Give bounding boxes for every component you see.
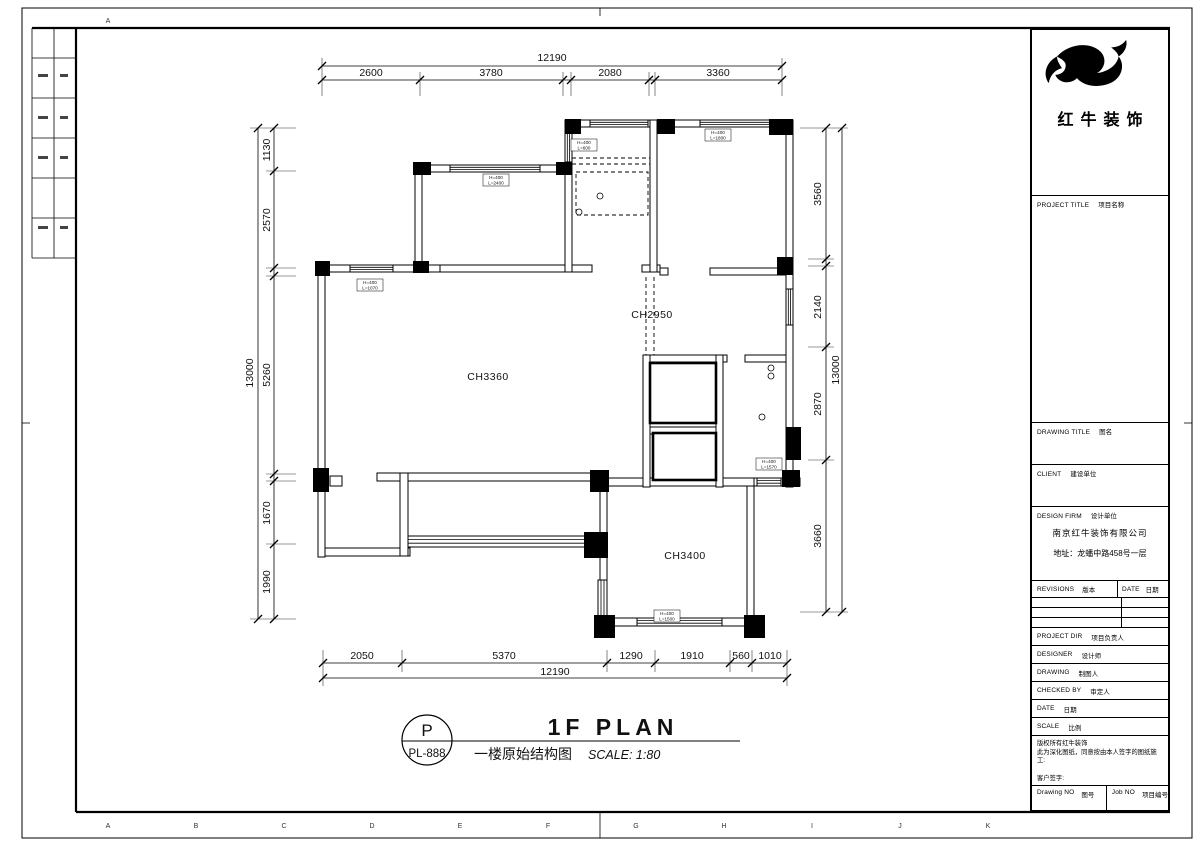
project-title-cell: PROJECT TITLE项目名称 (1032, 195, 1168, 422)
dim-value: 560 (732, 650, 750, 662)
row-label-en: DESIGNER (1037, 651, 1073, 658)
number-cells: Drawing NO图号 Job NO项目编号 (1032, 785, 1168, 810)
dim-value: 1130 (261, 139, 273, 162)
project-dir-row: PROJECT DIR项目负责人 (1032, 627, 1168, 645)
row-label-en: DRAWING (1037, 669, 1070, 676)
designer-row: DESIGNER设计师 (1032, 645, 1168, 663)
grid-letter: B (194, 823, 199, 830)
row-label-en: SCALE (1037, 723, 1059, 730)
window-tag-line: L=1800 (710, 136, 726, 141)
dim-value: 13000 (244, 358, 256, 387)
dim-value: 12190 (537, 52, 566, 64)
company-name: 南京红牛装饰有限公司 (1037, 527, 1163, 539)
window-tag: H=400L=1500 (654, 610, 680, 622)
window-tag-line: H=400 (711, 130, 725, 135)
plan-canvas: A A B C D E F G H I J K (0, 0, 1200, 844)
design-firm-cell: DESIGN FIRM设计单位 南京红牛装饰有限公司 地址：龙蟠中路458号一层 (1032, 506, 1168, 580)
grid-letter: F (546, 823, 550, 830)
copyright-line: 版权所有红牛装饰 (1037, 740, 1163, 749)
copyright-cell: 版权所有红牛装饰 此为深化图纸，同意按由本人签字的图纸施工: 客户签字: (1032, 735, 1168, 785)
window-tag-line: L=1500 (659, 617, 675, 622)
room-label-living: CH3360 (467, 371, 509, 383)
shaft-lower (653, 433, 716, 480)
window (590, 120, 648, 127)
grid-letters-bottom: A B C D E F G H I J K (106, 823, 991, 830)
project-title-label-en: PROJECT TITLE (1037, 202, 1089, 209)
dim-value: 2140 (812, 295, 824, 319)
row-label-cn: 审定人 (1090, 686, 1110, 696)
client-label-cn: 建设单位 (1070, 468, 1096, 478)
window (350, 265, 393, 272)
window (700, 120, 770, 127)
window-tag: H=400L=1070 (357, 279, 383, 291)
drawing-title-label-en: DRAWING TITLE (1037, 429, 1090, 436)
dim-value: 2080 (598, 67, 622, 79)
dim-value: 1990 (261, 570, 273, 594)
dim-value: 2570 (261, 208, 273, 232)
drawing-title-label-cn: 图名 (1099, 426, 1112, 436)
brand-logo-icon (1032, 30, 1132, 108)
revisions-table: REVISIONS版本 DATE日期 (1032, 580, 1168, 627)
dim-value: 1290 (619, 650, 643, 662)
window-tag: H=400L=1570 (756, 458, 782, 470)
binding-strip (32, 28, 76, 258)
row-label-en: CHECKED BY (1037, 687, 1081, 694)
window-tag: H=400L=600 (571, 139, 597, 151)
title-block-logo-cell: 红牛装饰 (1032, 30, 1168, 195)
dim-value: 1670 (261, 501, 273, 525)
window (598, 580, 607, 616)
dim-value: 2600 (359, 67, 383, 79)
room-label-dining: CH2950 (631, 309, 673, 321)
client-cell: CLIENT建设单位 (1032, 464, 1168, 506)
company-address: 地址：龙蟠中路458号一层 (1037, 548, 1163, 559)
brand-name: 红牛装饰 (1050, 106, 1149, 130)
revision-row (1032, 597, 1168, 607)
dim-value: 2870 (812, 392, 824, 416)
title-bubble-letter: P (421, 721, 432, 740)
row-label-cn: 制图人 (1079, 668, 1099, 678)
scale-row: SCALE比例 (1032, 717, 1168, 735)
window-tag-line: H=400 (660, 611, 674, 616)
grid-letter: K (986, 823, 991, 830)
design-firm-label-en: DESIGN FIRM (1037, 513, 1082, 520)
date-col-label-cn: 日期 (1146, 584, 1159, 594)
dim-chain-bottom: 2050 5370 1290 1910 560 1010 12190 (319, 650, 791, 686)
shaft-upper (650, 363, 716, 423)
dim-chain-right: 3560 2140 2870 3660 13000 (800, 124, 848, 616)
row-label-en: PROJECT DIR (1037, 633, 1082, 640)
grid-letter: D (369, 823, 374, 830)
floor-plan-walls (318, 120, 800, 626)
window-tag-line: H=400 (363, 280, 377, 285)
drawing-sheet: A A B C D E F G H I J K (0, 0, 1200, 844)
dim-value: 5260 (261, 363, 273, 387)
job-no-label-cn: 项目编号 (1142, 789, 1168, 810)
design-firm-label-cn: 设计单位 (1091, 510, 1117, 520)
date-col-label-en: DATE (1122, 586, 1140, 593)
dim-value: 3360 (706, 67, 730, 79)
window-tag-line: L=600 (578, 146, 591, 151)
grid-letter: C (281, 823, 286, 830)
client-label-en: CLIENT (1037, 471, 1061, 478)
drawing-row: DRAWING制图人 (1032, 663, 1168, 681)
row-label-cn: 设计师 (1082, 650, 1102, 660)
window-tag: H=400L=2400 (483, 174, 509, 186)
room-label-bedroom: CH3400 (664, 550, 706, 562)
window-tag-line: H=400 (489, 175, 503, 180)
window-tag: H=400L=1800 (705, 129, 731, 141)
plan-title-cn: 一楼原始结构图 (474, 746, 572, 762)
dim-chain-left: 13000 1130 2570 5260 1670 1990 (244, 124, 296, 623)
revision-row (1032, 617, 1168, 627)
copyright-line: 此为深化图纸，同意按由本人签字的图纸施工: (1037, 749, 1163, 766)
drawing-title-cell: DRAWING TITLE图名 (1032, 422, 1168, 464)
drawing-title-group: P PL-888 1F PLAN 一楼原始结构图 SCALE: 1:80 (402, 714, 740, 765)
dim-value: 12190 (540, 666, 569, 678)
dim-value: 3780 (479, 67, 503, 79)
dim-value: 2050 (350, 650, 374, 662)
dim-value: 1910 (680, 650, 704, 662)
title-block: 红牛装饰 PROJECT TITLE项目名称 DRAWING TITLE图名 C… (1030, 28, 1170, 812)
window (786, 289, 793, 325)
plan-title-en: 1F PLAN (548, 714, 679, 740)
dim-value: 1010 (758, 650, 782, 662)
revision-row (1032, 607, 1168, 617)
drawing-no-label-en: Drawing NO (1037, 789, 1074, 810)
row-label-cn: 比例 (1068, 722, 1081, 732)
grid-letter: H (721, 823, 726, 830)
dim-value: 5370 (492, 650, 516, 662)
dim-value: 13000 (830, 355, 842, 384)
row-label-en: DATE (1037, 705, 1055, 712)
grid-letter: A (106, 823, 111, 830)
project-title-label-cn: 项目名称 (1098, 199, 1124, 209)
sheet-number: PL-888 (408, 748, 445, 760)
window-tag-line: L=1570 (761, 465, 777, 470)
revisions-label-en: REVISIONS (1037, 586, 1074, 593)
window-tag-line: L=2400 (488, 181, 504, 186)
dim-chain-top: 12190 2600 3780 2080 3360 (318, 52, 786, 96)
window-tag-line: H=400 (577, 140, 591, 145)
window (450, 165, 540, 172)
client-signature-label: 客户签字: (1037, 773, 1163, 782)
grid-letter: E (458, 823, 463, 830)
grid-letter: I (811, 823, 813, 830)
row-label-cn: 日期 (1064, 704, 1077, 714)
window-tag-line: L=1070 (362, 286, 378, 291)
balcony-window-band (408, 536, 588, 547)
dim-value: 3560 (812, 182, 824, 206)
dashed-lines (572, 158, 654, 355)
dim-value: 3660 (812, 524, 824, 548)
window (757, 478, 781, 486)
grid-letter: J (898, 823, 902, 830)
job-no-label-en: Job NO (1112, 789, 1135, 810)
date-row: DATE日期 (1032, 699, 1168, 717)
grid-letter-top: A (106, 18, 111, 25)
revisions-label-cn: 版本 (1082, 584, 1095, 594)
row-label-cn: 项目负责人 (1091, 632, 1124, 642)
grid-letter: G (633, 823, 638, 830)
checked-by-row: CHECKED BY审定人 (1032, 681, 1168, 699)
structural-columns (313, 119, 801, 638)
window-tag-line: H=400 (762, 459, 776, 464)
plan-scale-note: SCALE: 1:80 (588, 748, 660, 762)
drawing-no-label-cn: 图号 (1081, 789, 1094, 810)
